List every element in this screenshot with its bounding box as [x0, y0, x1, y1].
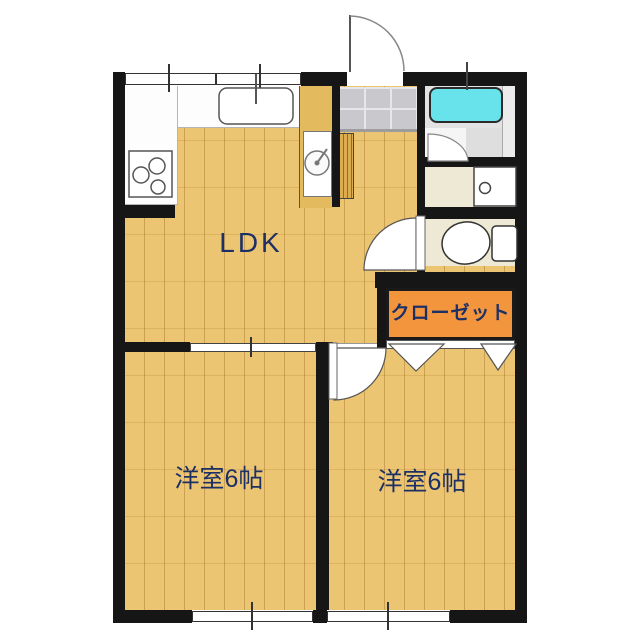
- toilet-door: [364, 216, 425, 270]
- bedroom-door: [329, 343, 386, 400]
- washbasin: [474, 167, 516, 206]
- entrance-door: [350, 15, 404, 72]
- window-ticks: [169, 64, 388, 630]
- toilet: [439, 219, 517, 267]
- washing-machine-icon: [305, 149, 329, 175]
- floor-plan: クローゼット: [0, 0, 640, 640]
- kitchen-sink: [219, 74, 293, 124]
- closet-folding-doors: [389, 344, 516, 371]
- bedroom-right-label: 洋室6帖: [342, 469, 502, 497]
- bathtub: [430, 62, 502, 122]
- gas-stove: [129, 151, 172, 197]
- ldk-label: LDK: [201, 228, 301, 259]
- fixtures-layer: [0, 0, 640, 640]
- bedroom-left-label: 洋室6帖: [139, 466, 299, 494]
- bathroom-door: [428, 134, 468, 161]
